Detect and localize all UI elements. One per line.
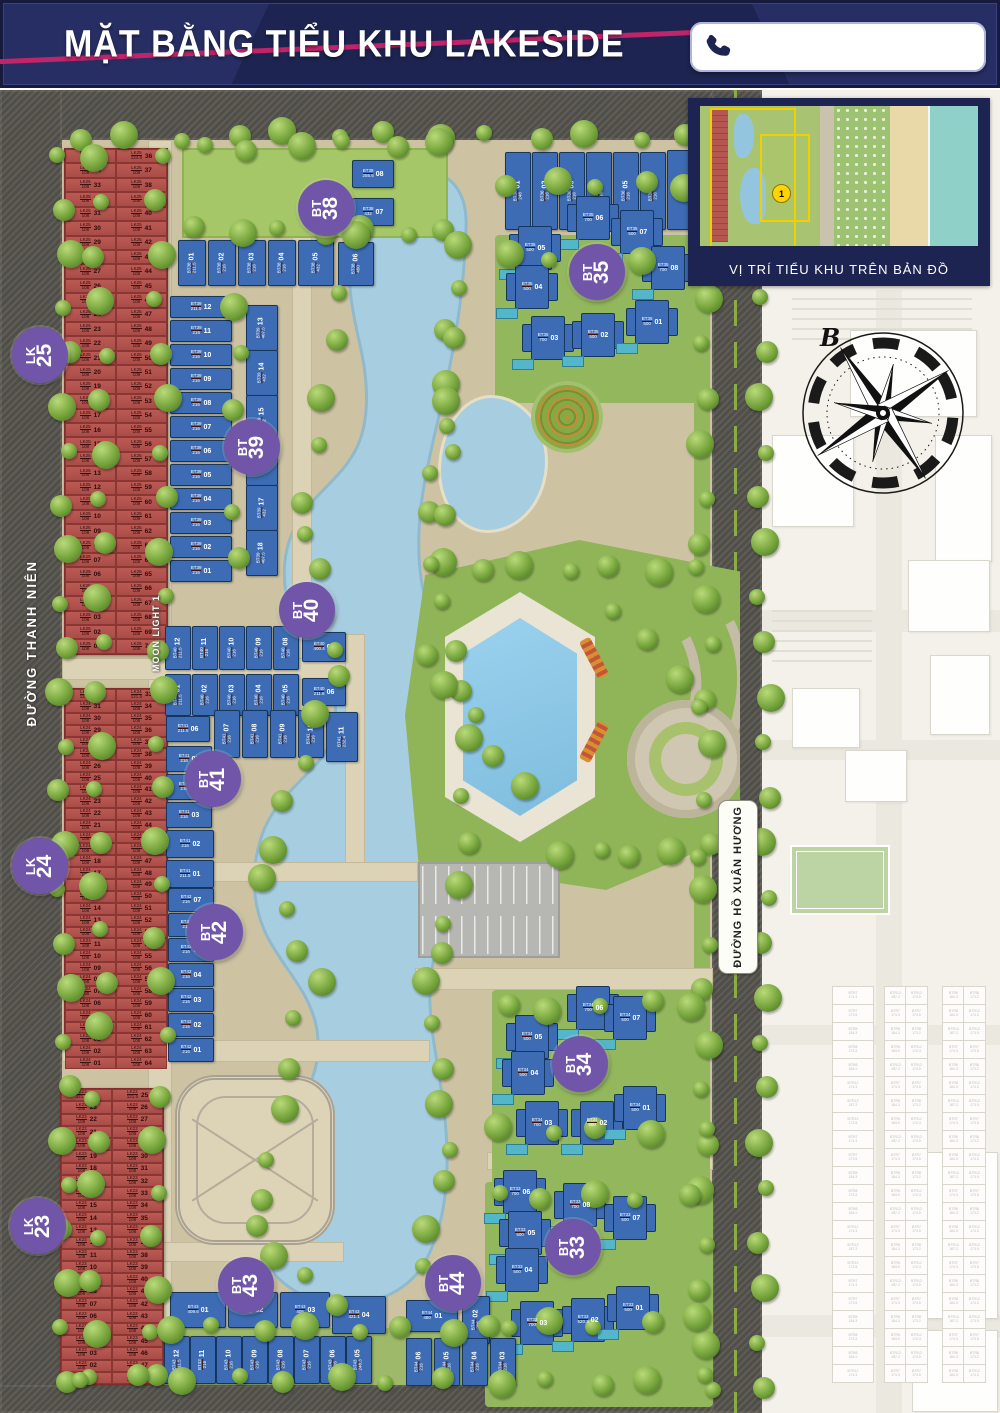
lot-LK23-35: LK2310835: [112, 1212, 163, 1224]
tree: [758, 445, 774, 461]
tree: [96, 972, 118, 994]
tree: [377, 1375, 393, 1391]
lot-LK25-61: LK2510861: [116, 510, 167, 524]
lot-LK24-22: LK2410822: [65, 808, 116, 820]
tree: [152, 445, 168, 461]
tree: [699, 1121, 715, 1137]
villa-lot-BT41-11: BT41232.411: [326, 712, 358, 762]
tree: [645, 558, 673, 586]
tree: [618, 845, 640, 867]
tree: [203, 1317, 219, 1333]
tree: [759, 787, 781, 809]
lot-LK24-47: LK2410847: [116, 855, 167, 867]
lot-LK25-06: LK2510806: [65, 567, 116, 581]
lot-LK23-46: LK2310846: [112, 1347, 163, 1359]
lk-row: LK2410822LK2410843: [65, 808, 167, 820]
tree: [443, 327, 465, 349]
tree: [48, 393, 76, 421]
villa-lot-BT35-08: BT3570008: [642, 246, 694, 290]
lot-LK24-30: LK2410830: [65, 713, 116, 725]
villa-lot-BT39-02: BT3921602: [170, 536, 232, 558]
tree: [696, 792, 712, 808]
tree: [72, 1372, 88, 1388]
zone-badge-BT43: BT43: [218, 1257, 274, 1313]
tree: [498, 994, 520, 1016]
lot-LK25-58: LK2510858: [116, 466, 167, 480]
tree: [286, 940, 308, 962]
tree: [140, 1225, 162, 1247]
tree: [445, 444, 461, 460]
tree: [86, 287, 114, 315]
tree: [79, 872, 107, 900]
lot-LK25-30: LK2510830: [65, 221, 116, 235]
tree: [476, 125, 492, 141]
lk-row: LK2310814LK2310835: [61, 1212, 163, 1224]
tree: [88, 1131, 110, 1153]
tree: [705, 1382, 721, 1398]
tree: [636, 628, 658, 650]
tree: [150, 676, 178, 704]
tree: [271, 790, 293, 812]
tree: [697, 1367, 713, 1383]
tree: [308, 968, 336, 996]
lot-LK25-65: LK2510865: [116, 567, 167, 581]
zone-badge-BT42: BT42: [187, 904, 243, 960]
villa-lot-BT41-01: BT41211.501: [166, 860, 214, 888]
tree: [83, 584, 111, 612]
tree: [432, 1058, 454, 1080]
rowhouse-block-LK25: LK25124.635LK25124.636LK2510834LK2510837…: [64, 148, 168, 655]
villa-lot-BT33-06: BT3370006: [494, 1170, 546, 1214]
lot-LK25-03: LK2510803: [65, 611, 116, 625]
lot-LK23-27: LK2310827: [112, 1114, 163, 1126]
tree: [309, 558, 331, 580]
lk-row: LK2410802LK2410863: [65, 1045, 167, 1057]
villa-lot-BT44-06: BT4421606: [406, 1338, 432, 1386]
tree: [488, 1370, 516, 1398]
lot-LK25-10: LK2510810: [65, 510, 116, 524]
tree: [229, 219, 257, 247]
tree: [747, 1232, 769, 1254]
phone-icon: [700, 29, 736, 65]
lk-row: LK2310815LK2310834: [61, 1200, 163, 1212]
tree: [297, 526, 313, 542]
villa-lot-BT35-03: BT3570003: [522, 316, 574, 360]
tree: [679, 1184, 701, 1206]
zone-badge-BT38: BT38: [298, 180, 354, 236]
tree: [425, 128, 453, 156]
lk-row: LK2310822LK2310827: [61, 1114, 163, 1126]
lk-row: LK2510806LK2510865: [65, 567, 167, 581]
tree: [352, 1324, 368, 1340]
lot-LK23-11: LK2310811: [61, 1249, 112, 1261]
tree: [633, 1366, 661, 1394]
lk-row: LK2310806LK2310843: [61, 1310, 163, 1322]
lot-LK23-07: LK2310807: [61, 1298, 112, 1310]
tree: [430, 671, 458, 699]
villa-lot-BT35-02: BT3550002: [572, 313, 624, 357]
tree: [90, 491, 106, 507]
tree: [753, 631, 775, 653]
location-inset-panel: 1 VỊ TRÍ TIỂU KHU TRÊN BẢN ĐỒ: [688, 98, 990, 286]
villa-lot-BT41-02: BT4121602: [166, 830, 214, 858]
lot-LK24-60: LK2410860: [116, 1010, 167, 1022]
tree: [224, 504, 240, 520]
tree: [699, 491, 715, 507]
tree: [156, 486, 178, 508]
tree: [50, 495, 72, 517]
tree: [434, 504, 456, 526]
lk-row: LK2410810LK2410855: [65, 950, 167, 962]
tree: [58, 739, 74, 755]
tree: [425, 1090, 453, 1118]
lk-row: LK2410814LK2410851: [65, 903, 167, 915]
villa-lot-BT39-04: BT3921604: [170, 488, 232, 510]
street-label-ho-xuan-huong: ĐƯỜNG HỒ XUÂN HƯƠNG: [718, 800, 758, 974]
tree: [439, 418, 455, 434]
lk-row: LK2410829LK2410836: [65, 725, 167, 737]
lot-LK24-21: LK2410821: [65, 820, 116, 832]
header-banner: MẶT BẰNG TIỂU KHU LAKESIDE: [0, 0, 1000, 88]
lot-LK25-51: LK2510851: [116, 365, 167, 379]
location-inset-map: 1: [700, 106, 978, 246]
tree: [94, 532, 116, 554]
tree: [698, 730, 726, 758]
villa-lot-BT33-01: BT3350001: [607, 1286, 659, 1330]
tree: [92, 441, 120, 469]
lot-LK24-02: LK2410802: [65, 1045, 116, 1057]
tree: [85, 1012, 113, 1040]
tree: [57, 974, 85, 1002]
tree: [222, 399, 244, 421]
tree: [328, 1363, 356, 1391]
tree: [758, 1180, 774, 1196]
villa-lot-BT39-03: BT3921603: [170, 512, 232, 534]
lot-LK23-22: LK2310822: [61, 1114, 112, 1126]
tree: [688, 1279, 710, 1301]
zone-badge-BT34: BT34: [552, 1036, 608, 1092]
tree: [183, 216, 205, 238]
tree: [80, 144, 108, 172]
villa-lot-BT38-08: BT38255.608: [352, 160, 394, 188]
tree: [753, 1377, 775, 1399]
lk-row: LK2410831LK2410834: [65, 701, 167, 713]
tree: [251, 1189, 273, 1211]
tree: [297, 1267, 313, 1283]
tree: [144, 1276, 172, 1304]
tree: [86, 781, 102, 797]
lot-LK24-26: LK2410826: [65, 760, 116, 772]
tree: [88, 732, 116, 760]
tree: [605, 603, 621, 619]
villa-lot-BT39-11: BT3921611: [170, 320, 232, 342]
lk-row: LK2410804LK2410861: [65, 1022, 167, 1034]
villa-lot-BT34-03: BT3470003: [516, 1101, 568, 1145]
tree: [423, 556, 439, 572]
tree: [232, 1368, 248, 1384]
tree: [154, 384, 182, 412]
lot-LK25-54: LK2510854: [116, 409, 167, 423]
tree: [472, 559, 494, 581]
tree: [144, 189, 166, 211]
lot-LK23-15: LK2310815: [61, 1200, 112, 1212]
tree: [143, 927, 165, 949]
villa-lot-BT40-12: BT40211.512: [165, 626, 191, 670]
tree: [174, 133, 190, 149]
lot-LK24-01: LK2410801: [65, 1057, 116, 1069]
tree: [92, 921, 108, 937]
lk-row: LK2510812LK2510859: [65, 481, 167, 495]
lot-LK24-61: LK2410861: [116, 1022, 167, 1034]
tree: [702, 937, 718, 953]
lot-LK24-31: LK2410831: [65, 701, 116, 713]
zone-badge-LK24: LK24: [12, 838, 68, 894]
lot-LK25-16: LK2510816: [65, 423, 116, 437]
tree: [151, 1185, 167, 1201]
lot-LK24-10: LK2410810: [65, 950, 116, 962]
tree: [149, 1086, 171, 1108]
tree: [84, 1091, 100, 1107]
tree: [235, 140, 257, 162]
compass-north-label: B: [819, 323, 840, 352]
tree: [259, 836, 287, 864]
lk-row: LK2510817LK2510854: [65, 409, 167, 423]
tree: [291, 1312, 319, 1340]
tree: [751, 528, 779, 556]
tree: [146, 291, 162, 307]
villa-lot-BT43-07: BT4321607: [294, 1336, 320, 1384]
lk-row: LK2510811LK2510860: [65, 495, 167, 509]
lot-LK25-47: LK2510847: [116, 308, 167, 322]
lot-LK25-45: LK2510845: [116, 279, 167, 293]
tree: [478, 1315, 500, 1337]
tree: [93, 194, 109, 210]
tree: [90, 1230, 106, 1246]
zone-badge-BT44: BT44: [425, 1255, 481, 1311]
villa-lot-BT34-01: BT3450001: [614, 1086, 666, 1130]
villa-lot-BT39-05: BT3921605: [170, 464, 232, 486]
tree: [468, 707, 484, 723]
lot-LK24-39: LK2410839: [116, 760, 167, 772]
tree: [416, 644, 438, 666]
lot-LK24-23: LK2410823: [65, 796, 116, 808]
tree: [695, 1031, 723, 1059]
lot-LK24-50: LK2410850: [116, 891, 167, 903]
zone-badge-BT33: BT33: [545, 1219, 601, 1275]
lk-row: LK2510809LK2510862: [65, 524, 167, 538]
tree: [544, 167, 572, 195]
tree: [228, 547, 250, 569]
villa-lot-BT39-06: BT3921606: [170, 440, 232, 462]
tree: [688, 533, 710, 555]
tree: [692, 585, 720, 613]
lot-LK23-31: LK2310831: [112, 1163, 163, 1175]
tree: [146, 1364, 168, 1386]
lot-LK23-03: LK2310803: [61, 1347, 112, 1359]
tree: [691, 699, 707, 715]
tree: [157, 1316, 185, 1344]
lot-LK24-55: LK2410855: [116, 950, 167, 962]
tree: [587, 179, 603, 195]
tree: [288, 132, 316, 160]
zone-badge-BT41: BT41: [185, 751, 241, 807]
tree: [677, 993, 705, 1021]
lot-LK25-48: LK2510848: [116, 322, 167, 336]
lot-LK23-34: LK2310834: [112, 1200, 163, 1212]
tree: [84, 681, 106, 703]
tree: [688, 559, 704, 575]
tree: [692, 1331, 720, 1359]
tree: [258, 1152, 274, 1168]
lk-row: LK2310823LK2310826: [61, 1101, 163, 1113]
tree: [291, 492, 313, 514]
tree: [220, 293, 248, 321]
tree: [757, 684, 785, 712]
lk-row: LK2510819LK2510852: [65, 380, 167, 394]
tree: [697, 388, 719, 410]
lk-row: LK2410823LK2410842: [65, 796, 167, 808]
tree: [693, 1081, 709, 1097]
villa-lot-BT39-10: BT3921610: [170, 344, 232, 366]
tree: [53, 933, 75, 955]
tree: [683, 1303, 711, 1331]
tree: [594, 842, 610, 858]
tree: [537, 1371, 553, 1387]
lk-row: LK2410801LK2410864: [65, 1057, 167, 1069]
lot-LK25-23: LK2510823: [65, 322, 116, 336]
tree: [634, 132, 650, 148]
tree: [699, 1237, 715, 1253]
villa-lot-BT39-07: BT3921607: [170, 416, 232, 438]
lk-row: LK2410803LK2410862: [65, 1033, 167, 1045]
tree: [424, 1015, 440, 1031]
tree: [749, 589, 765, 605]
tree: [597, 555, 619, 577]
tree: [745, 383, 773, 411]
lot-LK24-63: LK2410863: [116, 1045, 167, 1057]
tree: [705, 636, 721, 652]
lot-LK25-20: LK2510820: [65, 365, 116, 379]
tree: [138, 1126, 166, 1154]
tree: [451, 280, 467, 296]
tree: [563, 563, 579, 579]
tree: [53, 199, 75, 221]
lot-LK24-14: LK2410814: [65, 903, 116, 915]
tree: [57, 240, 85, 268]
tree: [110, 121, 138, 149]
lk-row: LK2510834LK2510837: [65, 163, 167, 177]
tree: [197, 137, 213, 153]
page-title: MẶT BẰNG TIỂU KHU LAKESIDE: [64, 0, 625, 88]
inset-road: [820, 106, 834, 246]
lot-LK23-39: LK2310839: [112, 1261, 163, 1273]
lot-LK24-13: LK2410813: [65, 915, 116, 927]
lot-LK24-52: LK2410852: [116, 915, 167, 927]
lot-LK24-51: LK2410851: [116, 903, 167, 915]
tree: [422, 465, 438, 481]
zone-badge-BT40: BT40: [279, 582, 335, 638]
villa-lot-BT41-08: BT4121608: [242, 710, 268, 758]
tree: [689, 875, 717, 903]
tree: [745, 1129, 773, 1157]
villa-lot-BT35-01: BT3550001: [626, 300, 678, 344]
villa-lot-BT41-09: BT4121609: [270, 710, 296, 758]
tree: [690, 849, 706, 865]
lot-LK25-37: LK2510837: [116, 163, 167, 177]
villa-lot-BT40-11: BT4021611: [192, 626, 218, 670]
lk-row: LK2310818LK2310831: [61, 1163, 163, 1175]
lot-LK23-43: LK2310843: [112, 1310, 163, 1322]
tree: [334, 133, 350, 149]
master-plan-map: BTR7174.3BTR7173.5BTR8184.3BTR8173.2BTR8…: [0, 90, 1000, 1413]
tree: [453, 788, 469, 804]
villa-lot-BT39-13: BT39407.513: [246, 305, 278, 351]
tree: [327, 642, 343, 658]
tree: [695, 285, 723, 313]
tree: [96, 634, 112, 650]
tree: [434, 593, 450, 609]
tree: [752, 289, 768, 305]
villa-lot-BT38-04: BT3821604: [268, 240, 296, 286]
villa-lot-BT42-03: BT4221603: [168, 988, 214, 1012]
lk-row: LK2510830LK2510841: [65, 221, 167, 235]
tree: [331, 285, 347, 301]
inset-beach: [890, 106, 928, 246]
villa-lot-BT39-17: BT3943217: [246, 485, 278, 531]
tree: [233, 345, 249, 361]
tree: [82, 246, 104, 268]
inset-caption: VỊ TRÍ TIỂU KHU TRÊN BẢN ĐỒ: [688, 262, 990, 277]
tree: [56, 637, 78, 659]
lot-LK25-62: LK2510862: [116, 524, 167, 538]
lk-row: LK2510810LK2510861: [65, 510, 167, 524]
tree: [751, 1274, 779, 1302]
lot-LK23-38: LK2310838: [112, 1249, 163, 1261]
tree: [666, 665, 694, 693]
villa-lot-BT39-14: BT3943214: [246, 350, 278, 396]
lk-row: LK2310816LK2310833: [61, 1187, 163, 1199]
villa-lot-BT38-02: BT3821602: [208, 240, 236, 286]
tree: [152, 776, 174, 798]
tree: [311, 437, 327, 453]
lot-LK24-36: LK2410836: [116, 725, 167, 737]
villa-lot-BT44-04: BT4421604: [462, 1338, 488, 1386]
tree: [387, 136, 409, 158]
villa-lot-BT33-03: BT3370003: [511, 1301, 563, 1345]
tree: [756, 341, 778, 363]
tree: [389, 1316, 411, 1338]
inset-sea: [928, 106, 978, 246]
lot-LK23-06: LK2310806: [61, 1310, 112, 1322]
tree: [697, 1134, 719, 1156]
zone-badge-BT35: BT35: [569, 244, 625, 300]
tree: [148, 241, 176, 269]
lk-row: LK2410818LK2410847: [65, 855, 167, 867]
lk-row: LK2510827LK2510844: [65, 264, 167, 278]
tree: [145, 538, 173, 566]
tree: [328, 665, 350, 687]
lk-row: LK2410826LK2410839: [65, 760, 167, 772]
compass-rose: B: [798, 328, 968, 498]
tree: [747, 486, 769, 508]
tree: [155, 148, 171, 164]
tree: [154, 876, 170, 892]
phone-contact-button[interactable]: [690, 22, 986, 72]
tree: [48, 1127, 76, 1155]
inset-resort-area: [834, 106, 890, 246]
villa-lot-BT40-09: BT4021609: [246, 626, 272, 670]
villa-lot-BT33-07: BT3350007: [604, 1196, 656, 1240]
